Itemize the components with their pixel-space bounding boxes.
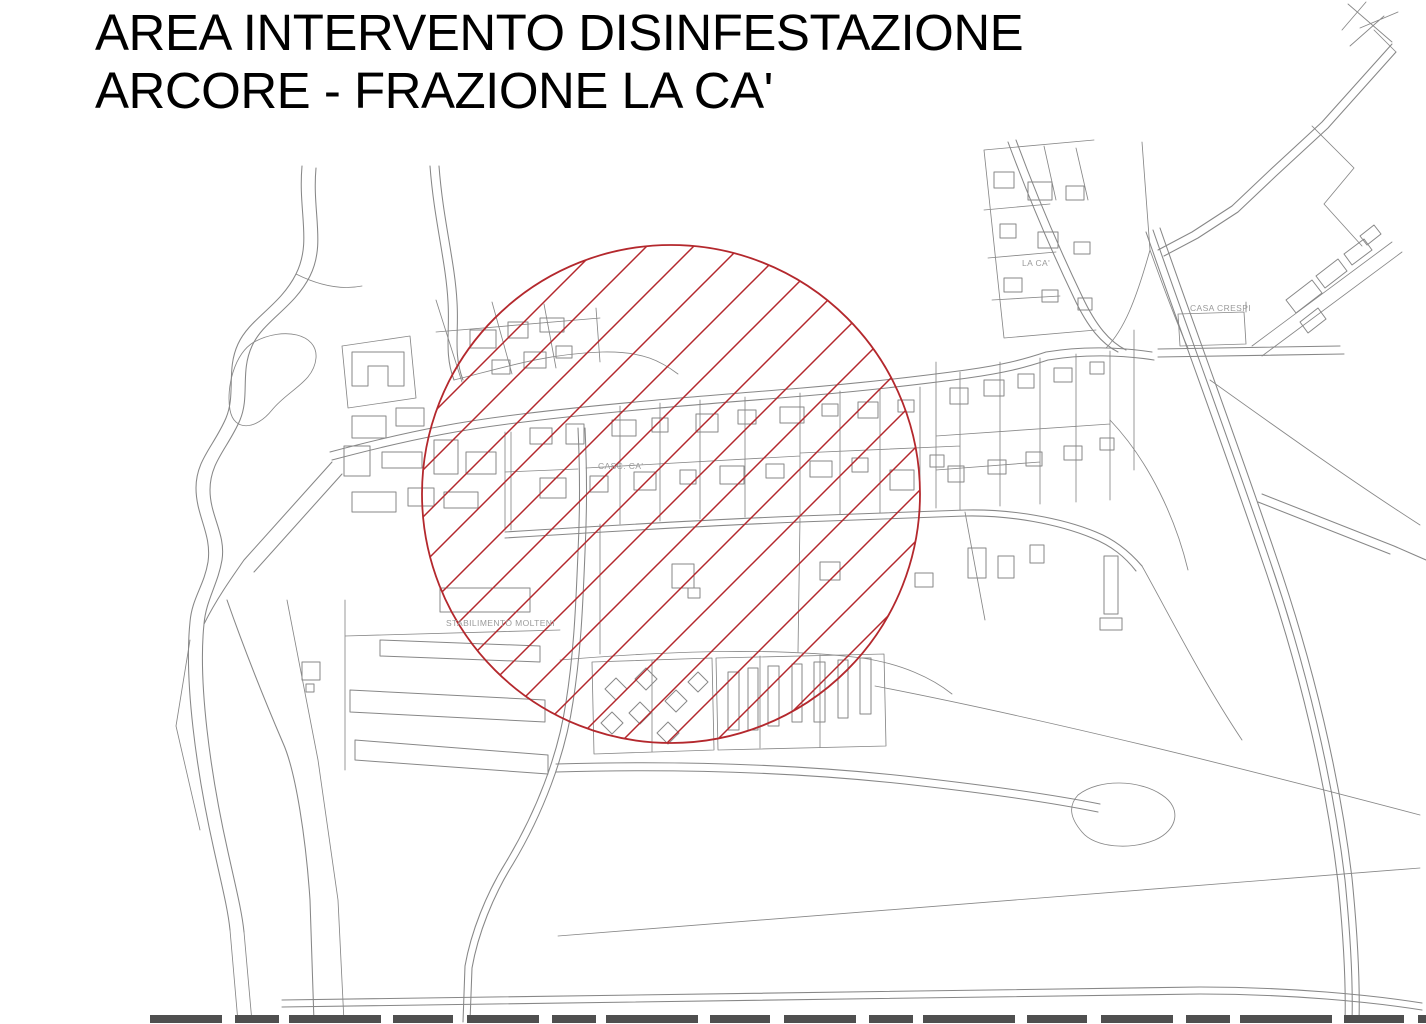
casa-crespi-district <box>1178 225 1402 356</box>
page-title: AREA INTERVENTO DISINFESTAZIONE ARCORE -… <box>95 4 1023 120</box>
arch-building <box>342 336 416 408</box>
map-canvas: LA CA' CASA CRESPI CASC. CA' STABILIMENT… <box>0 0 1426 1024</box>
map-label-casc-ca: CASC. CA' <box>598 461 643 471</box>
bottom-roads <box>150 987 1426 1019</box>
intervention-zone <box>422 245 920 743</box>
map-label-stabilimento-molteni: STABILIMENTO MOLTENI <box>446 618 555 628</box>
page: AREA INTERVENTO DISINFESTAZIONE ARCORE -… <box>0 0 1426 1024</box>
southwest-road <box>204 462 342 624</box>
title-line-1: AREA INTERVENTO DISINFESTAZIONE <box>95 4 1023 62</box>
map-label-casa-crespi: CASA CRESPI <box>1190 303 1251 313</box>
map-label-la-ca: LA CA' <box>1022 258 1050 268</box>
top-right-zigzag-road <box>1158 2 1398 256</box>
intervention-zone-hatch <box>422 245 920 743</box>
bottom-left-field-lines <box>176 600 344 1022</box>
title-line-2: ARCORE - FRAZIONE LA CA' <box>95 62 1023 120</box>
la-ca-district <box>984 140 1188 352</box>
